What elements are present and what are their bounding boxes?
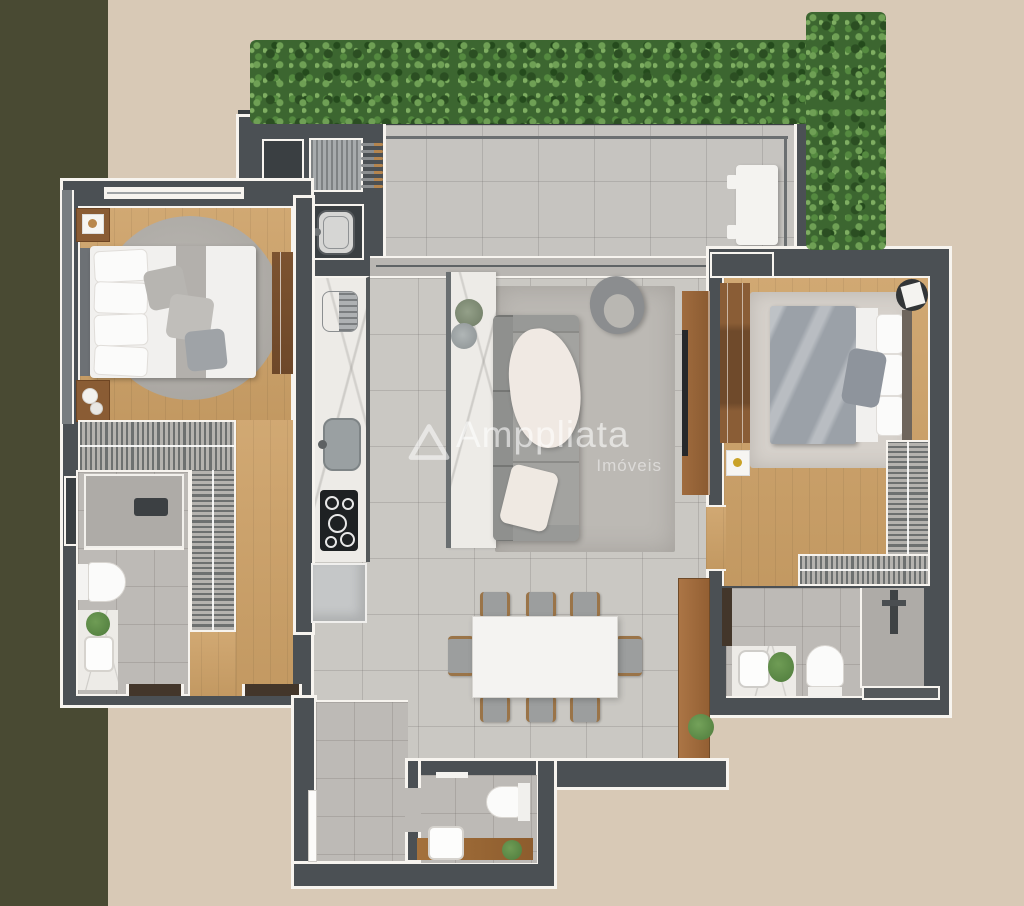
suite-sink [738,650,770,688]
kitchen-sink-top [322,291,358,332]
suite-headboard [902,310,912,444]
terrace-stool-1 [727,175,737,189]
bed-pillow [93,249,149,284]
shower-left-fixture [134,498,168,516]
suite-passage [706,505,726,571]
lavabo-door-gap [405,788,421,832]
suite-bath-door [722,588,732,646]
suite-pillow [876,314,904,354]
lavabo-toilet-tank [518,783,530,821]
kitchen-sink-main [323,418,361,471]
hedge-top [250,40,814,124]
dining-chair-4 [480,696,510,722]
hall-slider-door-1 [126,684,184,696]
terrace-stool-2 [727,225,737,239]
nightstand-top-decor [88,219,97,228]
plant-left-bath [86,612,110,636]
sliding-door-band [370,256,712,278]
kitchen-wall [296,198,312,632]
console-plant [688,714,714,740]
suite-toilet-tank [808,687,842,698]
dining-chair-6 [570,696,600,722]
bed-pillow [93,313,148,347]
lavabo-plant [502,840,522,860]
nightstand-plate-2 [90,402,103,415]
terrace-table [736,165,778,245]
dining-chair-7 [448,636,474,676]
cooktop [320,490,358,551]
suite-wall-notch [710,252,774,278]
kitchen-faucet [318,440,327,449]
bedroom-window-top [104,187,244,199]
lavabo-bottom-wall [294,864,554,886]
bed-headboard [80,248,90,376]
laundry-sink [317,210,355,255]
wall-niche-left [64,476,78,546]
tv [682,330,688,456]
hall-floor [314,700,408,863]
bedroom-window-left [60,190,74,424]
dining-table [472,616,618,698]
corridor-floor [236,420,293,696]
bed-pillow [93,281,148,315]
dining-chair-2 [526,592,556,618]
grill [309,138,363,192]
corridor-floor-2 [184,632,236,696]
closet-top [78,420,236,472]
suite-wardrobe [720,283,750,443]
sliding-door-line [376,265,706,267]
suite-tray-decor [733,458,742,467]
dining-chair-5 [526,696,556,722]
skewers [361,143,387,191]
suite-bed-duvet [770,306,856,444]
suite-closet-bottom [798,554,930,586]
living-bottom-wall [536,761,726,787]
terrace-rail-right [784,136,787,260]
dining-chair-1 [480,592,510,618]
bed-pillow [93,345,148,378]
suite-bath-plant [768,652,794,682]
shower-left-line [84,548,184,550]
lavabo-top-wall [408,761,536,775]
lavabo-toilet-bowl [486,786,520,818]
suite-shower-bar [882,600,906,606]
dining-chair-8 [616,636,642,676]
toilet-left-tank [78,564,88,600]
closet-side [190,470,236,632]
hedge-right [806,12,886,250]
lavabo-sink [428,826,464,860]
hall-door-leaf [308,790,317,862]
suite-bath-niche [862,686,940,700]
suite-pillow [876,396,904,436]
dining-chair-3 [570,592,600,618]
sink-left [84,636,114,672]
suite-shower-column [890,590,898,634]
floor-plan-canvas: Amppliata Imóveis [0,0,1024,906]
suite-toilet-bowl [806,645,844,687]
terrace-rail-top [384,136,788,139]
suite-closet-right [886,440,930,556]
lavabo-towel-bar [436,772,468,778]
island-bowl-2 [451,323,477,349]
bed-accent-pillow [184,328,228,372]
fridge [311,563,367,623]
